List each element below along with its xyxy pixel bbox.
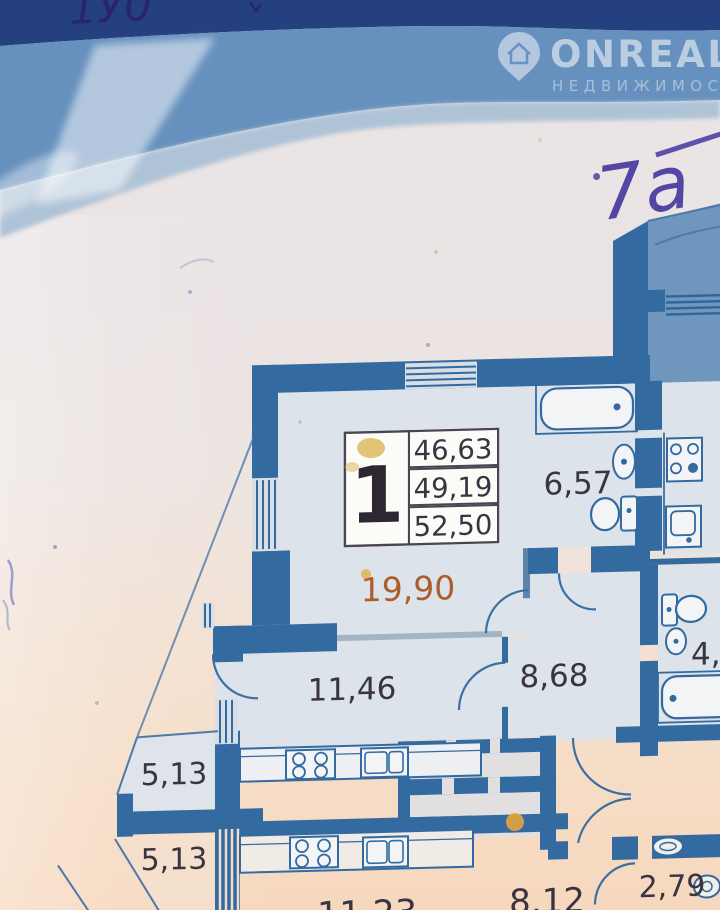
label-bathroom-top: 6,57 (543, 465, 612, 503)
label-kitchen: 11,46 (308, 671, 397, 709)
unit-area-2: 49,19 (414, 471, 493, 505)
label-balcony-lower: 5,13 (141, 842, 208, 879)
speck (426, 343, 430, 347)
yellow-stain (357, 438, 385, 458)
stove-icon (286, 749, 335, 779)
brand-subtitle: НЕДВИЖИМОСТЬ (552, 77, 720, 95)
label-neighbor-center: 8,12 (509, 881, 585, 910)
ink-speck (188, 290, 192, 294)
speck (298, 420, 302, 424)
yellow-stain (361, 569, 371, 579)
sink-icon (666, 628, 686, 655)
speck (95, 701, 99, 705)
bathtub-icon (536, 382, 637, 434)
speck (434, 250, 438, 254)
floorplan-photo: 1 46,63 49,19 52,50 19,90 6,57 11,46 8,6… (0, 0, 720, 910)
label-living-area: 19,90 (361, 568, 455, 609)
unit-number: 1 (350, 450, 404, 541)
handwriting-top-text: 1У0 (68, 0, 153, 35)
speck (538, 138, 542, 142)
orange-stain (506, 813, 524, 831)
handwriting-note-text: 7а (591, 139, 696, 238)
ink-speck (53, 545, 57, 549)
kitchen-sink-icon (666, 506, 701, 548)
yellow-stain (345, 462, 359, 472)
label-neighbor-left: 11,23 (317, 893, 417, 910)
unit-area-3: 52,50 (414, 509, 493, 543)
brand-name: ONREALT (550, 33, 720, 76)
stove-icon (290, 836, 338, 868)
kitchen-sink-icon (361, 747, 408, 777)
stove-icon (667, 438, 702, 482)
label-neighbor-right: 2,79 (639, 869, 706, 906)
label-balcony-upper: 5,13 (141, 757, 208, 794)
counter-neighbor (240, 830, 473, 873)
label-bathroom-right: 4,9 (691, 636, 720, 673)
sink-icon (653, 837, 683, 856)
label-hallway: 8,68 (519, 658, 588, 696)
toilet-icon (591, 496, 637, 531)
kitchen-sink-icon (363, 836, 408, 867)
window-small-icon (202, 602, 214, 628)
sink-icon (613, 444, 635, 479)
unit-area-1: 46,63 (414, 433, 493, 467)
